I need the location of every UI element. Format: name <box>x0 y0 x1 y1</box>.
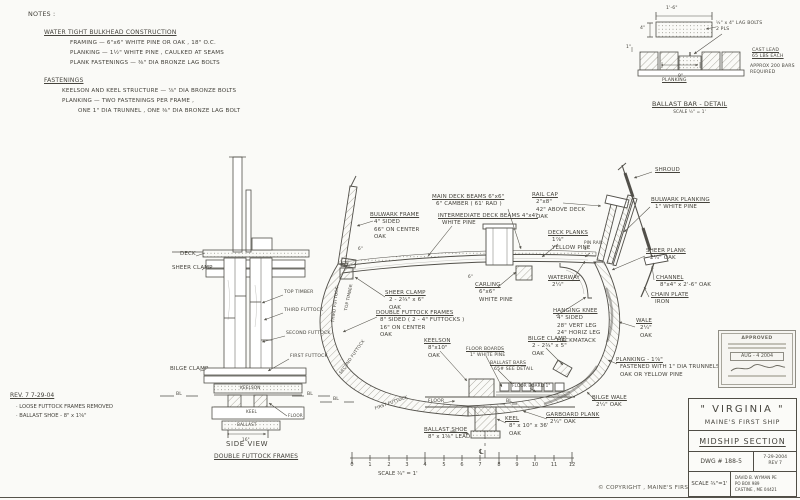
dim-text: 6" <box>358 246 363 252</box>
label-floor-boards: FLOOR BOARDS1" WHITE PINE <box>466 347 505 359</box>
label-sv-sheer-clamp: SHEER CLAMP <box>172 265 213 272</box>
label-body: 2¼" OAK <box>646 255 686 262</box>
label-lag-bolts: ½" x 4" LAG BOLTS 2 PLS <box>716 21 762 33</box>
ruler-tick: 10 <box>532 462 538 468</box>
label-intermediate-deck-beams: INTERMEDIATE DECK BEAMS 4"x4"WHITE PINE <box>438 213 538 228</box>
label-head: WATERWAY <box>548 275 580 282</box>
label-keel: KEEL8" x 10" x 36' OAK <box>505 416 549 438</box>
title-block-row: SCALE ¾"=1' DAVID B. WYMAN PE PO BOX 989… <box>689 472 796 496</box>
label-body: 6"x6" WHITE PINE <box>475 289 513 304</box>
label-floor-board-small: FLOOR BOARD 1" <box>512 383 550 389</box>
label-sv-keel: KEEL <box>246 409 257 415</box>
label-body: 8"x10" OAK <box>424 345 451 360</box>
note-line: ONE 1" DIA TRUNNEL , ONE ⅜" DIA BRONZE L… <box>78 108 328 114</box>
label-head: BILGE WALE <box>592 395 627 402</box>
label-planking-detail: PLANKING <box>662 78 687 84</box>
label-head: BILGE CLAMP <box>528 336 567 343</box>
notes-heading-bulkhead: WATER TIGHT BULKHEAD CONSTRUCTION <box>44 29 328 36</box>
ruler-tick: 5 <box>442 462 445 468</box>
label-head: GARBOARD PLANK <box>546 412 599 419</box>
note-line: FRAMING — 6"x6" WHITE PINE OR OAK , 18" … <box>70 40 328 46</box>
label-body: ½" x 4" LAG BOLTS 2 PLS <box>716 21 762 33</box>
label-body: 2 - 2¾" x 5" OAK <box>528 343 567 358</box>
label-cast-lead: CAST LEAD 65 LBS EACH <box>752 48 784 60</box>
approval-stamp: APPROVED AUG - 4 2004 <box>718 330 796 388</box>
label-head: BULWARK FRAME <box>370 212 420 219</box>
label-body: 2¼" <box>548 282 580 289</box>
label-pin-rail: PIN RAIL4" <box>584 240 603 251</box>
note-line: PLANKING — TWO FASTENINGS PER FRAME , <box>62 98 328 104</box>
side-view-title: SIDE VIEW <box>226 440 268 449</box>
view-title-text: SIDE VIEW <box>226 440 268 449</box>
author-address: DAVID B. WYMAN PE PO BOX 989 CASTINE , M… <box>731 472 796 496</box>
ruler-tick: 11 <box>551 462 557 468</box>
label-head: BL <box>506 399 512 405</box>
label-body: FASTENED WITH 1" DIA TRUNNELS OAK OR YEL… <box>616 364 720 379</box>
label-garboard-plank: GARBOARD PLANK2¼" OAK <box>546 412 599 427</box>
detail-title-text: BALLAST BAR - DETAIL <box>652 100 727 109</box>
label-carling: CARLING6"x6" WHITE PINE <box>475 282 513 304</box>
revision-item: · BALLAST SHOE - 8" x 1⅝" <box>16 413 113 419</box>
label-ballast-bars: BALLAST BARS65# SEE DETAIL <box>490 361 533 373</box>
label-bilge-wale: BILGE WALE2¼" OAK <box>592 395 627 410</box>
label-head: SHEER PLANK <box>646 248 686 255</box>
label-head: SHROUD <box>655 167 680 174</box>
notes-section: NOTES : WATER TIGHT BULKHEAD CONSTRUCTIO… <box>28 10 328 114</box>
ruler-tick: 9 <box>515 462 518 468</box>
label-head: ℄ <box>479 448 484 457</box>
label-head: MAIN DECK BEAMS 6"x6" <box>432 194 504 201</box>
dim-text: 1'-6" <box>666 6 678 12</box>
label-head: SECOND FUTTOCK <box>286 331 331 337</box>
label-baseline-center: BL <box>506 399 512 405</box>
label-head: SHEER CLAMP <box>385 290 426 297</box>
label-head: FIRST FUTTOCK <box>290 354 328 360</box>
label-rail-cap: RAIL CAP2"x8" 42" ABOVE DECK OAK <box>532 192 585 222</box>
dim-bar-height: 4" <box>640 26 645 32</box>
label-head: KEELSON <box>424 338 451 345</box>
label-body: APPROX 200 BARS REQUIRED <box>750 64 795 76</box>
label-body: 2¼" OAK <box>546 419 599 426</box>
label-shroud: SHROUD <box>655 167 680 174</box>
label-double-futtock-frames: DOUBLE FUTTOCK FRAMES8" SIDED ( 2 - 4" F… <box>376 310 464 340</box>
label-head: PLANKING - 1⅞" <box>616 357 720 364</box>
view-subtitle-text: DOUBLE FUTTOCK FRAMES <box>214 453 298 461</box>
label-keelson: KEELSON8"x10" OAK <box>424 338 451 360</box>
note-line: KEELSON AND KEEL STRUCTURE — ⅞" DIA BRON… <box>62 88 328 94</box>
organization-name: MAINE'S FIRST SHIP <box>689 419 796 431</box>
drawing-scale: SCALE ¾"=1' <box>689 472 731 496</box>
label-sheer-clamp: SHEER CLAMP2 - 2¾" x 6" OAK <box>385 290 426 312</box>
ruler-tick: 8 <box>497 462 500 468</box>
stamp-illegible-line <box>728 347 786 349</box>
ruler-tick: 12 <box>569 462 575 468</box>
label-head: CARLING <box>475 282 513 289</box>
label-sv-ballast: BALLAST <box>237 422 257 428</box>
dim-text: 4" <box>640 26 645 32</box>
stamp-approved-text: APPROVED <box>722 336 792 341</box>
label-head: FLOOR <box>428 399 444 405</box>
label-head: PLANKING <box>662 78 687 84</box>
note-line: PLANKING — 1½" WHITE PINE , CAULKED AT S… <box>70 50 328 56</box>
label-sv-bl-right: BL <box>307 392 313 398</box>
label-body: 4" SIDED 66" ON CENTER OAK <box>370 219 420 241</box>
notes-title: NOTES : <box>28 10 328 18</box>
label-head: KEEL <box>246 409 257 415</box>
label-head: DECK <box>180 251 196 258</box>
label-head: DECK PLANKS <box>548 230 590 237</box>
label-head: KEELSON <box>240 385 261 391</box>
label-head: TOP TIMBER <box>284 290 314 296</box>
label-sv-bl-left: BL <box>176 392 182 398</box>
notes-heading-fastenings: FASTENINGS <box>44 77 328 84</box>
dim-one-inch: 1" <box>626 45 631 51</box>
label-body: 2¼" OAK <box>592 402 627 409</box>
label-wale: WALE2¼" OAK <box>636 318 652 340</box>
label-head: PIN RAIL <box>584 240 603 246</box>
label-waterway: WATERWAY2¼" <box>548 275 580 290</box>
label-floor: FLOOR <box>428 399 444 405</box>
dim-six-inch-a: 6" <box>358 246 363 252</box>
ruler-tick: 1 <box>368 462 371 468</box>
label-head: BALLAST <box>237 422 257 428</box>
side-view-subtitle: DOUBLE FUTTOCK FRAMES <box>214 453 298 461</box>
label-sv-deck: DECK <box>180 251 196 258</box>
revision-item: · LOOSE FUTTOCK FRAMES REMOVED <box>16 404 113 410</box>
ruler-tick: 2 <box>387 462 390 468</box>
label-head: INTERMEDIATE DECK BEAMS 4"x4" <box>438 213 538 220</box>
approval-stamp-inner: APPROVED AUG - 4 2004 <box>721 333 793 385</box>
label-body: WHITE PINE <box>438 220 538 227</box>
label-bulwark-frame: BULWARK FRAME4" SIDED 66" ON CENTER OAK <box>370 212 420 242</box>
note-line: PLANK FASTENINGS — ⅜" DIA BRONZE LAG BOL… <box>70 60 328 66</box>
label-head: DOUBLE FUTTOCK FRAMES <box>376 310 464 317</box>
centerline-symbol: ℄ <box>479 448 484 457</box>
detail-scale-text: SCALE ½" = 1' <box>652 109 727 115</box>
label-body: 8" x 1⅝" LEAD <box>424 434 470 441</box>
title-block: " VIRGINIA " MAINE'S FIRST SHIP MIDSHIP … <box>688 398 797 497</box>
ruler-tick: 0 <box>350 462 353 468</box>
label-head: THIRD FUTTOCK <box>284 308 323 314</box>
label-planking: PLANKING - 1⅞"FASTENED WITH 1" DIA TRUNN… <box>616 357 720 379</box>
label-sv-first-futtock: FIRST FUTTOCK <box>290 354 328 360</box>
stamp-illegible-line <box>728 375 786 377</box>
label-bilge-clamp: BILGE CLAMP2 - 2¾" x 5" OAK <box>528 336 567 358</box>
label-ballast-shoe: BALLAST SHOE8" x 1⅝" LEAD <box>424 427 470 442</box>
label-body: CAST LEAD 65 LBS EACH <box>752 48 784 60</box>
label-chain-plate: CHAIN PLATEIRON <box>651 292 689 307</box>
revision-note: REV. 7 7-29-04 · LOOSE FUTTOCK FRAMES RE… <box>10 392 113 419</box>
ruler-tick: 4 <box>423 462 426 468</box>
label-sheer-plank: SHEER PLANK2¼" OAK <box>646 248 686 263</box>
label-baseline-left: BL <box>333 397 339 403</box>
ship-name: " VIRGINIA " <box>689 399 796 415</box>
drawing-revision: REV 7 <box>756 461 794 467</box>
label-body: 8"x4" x 2'-6" OAK <box>656 282 711 289</box>
ruler-tick: 7 <box>478 462 481 468</box>
label-body: 4" <box>584 246 603 252</box>
label-body: 65# SEE DETAIL <box>490 367 533 373</box>
ruler-scale-label: SCALE ¾" = 1' <box>378 471 418 477</box>
drawing-sheet: NOTES : WATER TIGHT BULKHEAD CONSTRUCTIO… <box>0 0 800 500</box>
title-block-row: DWG # 188-5 7-29-2004 REV 7 <box>689 452 796 472</box>
label-head: BILGE CLAMP <box>170 366 208 373</box>
label-body: 2¼" OAK <box>636 325 652 340</box>
dim-six-inch-b: 6" <box>468 274 473 280</box>
label-sv-second-futtock: SECOND FUTTOCK <box>286 331 331 337</box>
label-head: WALE <box>636 318 652 325</box>
label-bar-quantity: APPROX 200 BARS REQUIRED <box>750 64 795 76</box>
ballast-detail-title: BALLAST BAR - DETAILSCALE ½" = 1' <box>652 100 727 114</box>
label-head: BL <box>176 392 182 398</box>
label-head: BL <box>333 397 339 403</box>
label-head: FLOOR <box>288 413 303 419</box>
label-main-deck-beams: MAIN DECK BEAMS 6"x6"6" CAMBER ( 61' RAD… <box>432 194 504 209</box>
dim-text: 1" <box>626 45 631 51</box>
label-body: 1" WHITE PINE <box>466 353 505 359</box>
revision-heading: REV. 7 7-29-04 <box>10 392 113 399</box>
label-sv-top-timber: TOP TIMBER <box>284 290 314 296</box>
stamp-date: AUG - 4 2004 <box>730 352 784 361</box>
label-head: RAIL CAP <box>532 192 585 199</box>
label-head: KEEL <box>505 416 549 423</box>
label-bulwark-planking: BULWARK PLANKING1" WHITE PINE <box>651 197 710 212</box>
drawing-title: MIDSHIP SECTION <box>689 431 796 452</box>
label-head: CHANNEL <box>656 275 711 282</box>
label-body: IRON <box>651 299 689 306</box>
label-sv-keelson: KEELSON <box>240 385 261 391</box>
ruler-tick: 3 <box>405 462 408 468</box>
ruler-tick: 6 <box>460 462 463 468</box>
dim-text: 6" <box>468 274 473 280</box>
label-head: CHAIN PLATE <box>651 292 689 299</box>
label-sv-third-futtock: THIRD FUTTOCK <box>284 308 323 314</box>
drawing-number: DWG # 188-5 <box>689 452 754 471</box>
label-head: BL <box>307 392 313 398</box>
stamp-signature <box>727 362 787 374</box>
label-body: 6" CAMBER ( 61' RAD ) <box>432 201 504 208</box>
label-head: BALLAST SHOE <box>424 427 470 434</box>
dim-bar-length: 1'-6" <box>666 6 678 12</box>
stamp-illegible-line <box>728 343 786 345</box>
label-body: 2"x8" 42" ABOVE DECK OAK <box>532 199 585 221</box>
label-head: SHEER CLAMP <box>172 265 213 272</box>
date-and-revision: 7-29-2004 REV 7 <box>754 452 796 471</box>
label-body: 1" WHITE PINE <box>651 204 710 211</box>
label-head: HANGING KNEE <box>553 308 600 315</box>
label-sv-bilge-clamp: BILGE CLAMP <box>170 366 208 373</box>
label-head: FLOOR BOARD 1" <box>512 383 550 389</box>
label-sv-floor: FLOOR <box>288 413 303 419</box>
label-body: 8" x 10" x 36' OAK <box>505 423 549 438</box>
label-body: 8" SIDED ( 2 - 4" FUTTOCKS ) 16" ON CENT… <box>376 317 464 339</box>
label-channel: CHANNEL8"x4" x 2'-6" OAK <box>656 275 711 290</box>
label-head: BULWARK PLANKING <box>651 197 710 204</box>
